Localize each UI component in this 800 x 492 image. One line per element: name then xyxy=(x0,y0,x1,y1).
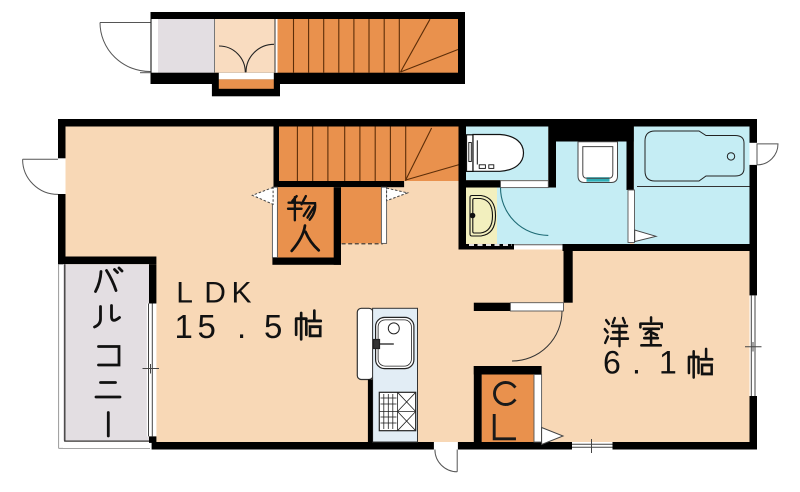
svg-text:5: 5 xyxy=(264,308,282,345)
svg-text:5: 5 xyxy=(198,308,216,345)
svg-text:D: D xyxy=(204,277,226,310)
svg-text:1: 1 xyxy=(175,308,193,345)
svg-text:K: K xyxy=(232,277,252,310)
svg-text:.: . xyxy=(237,308,246,345)
svg-text:L: L xyxy=(176,277,193,310)
svg-text:6: 6 xyxy=(603,345,621,381)
svg-text:1: 1 xyxy=(659,345,677,381)
svg-text:.: . xyxy=(632,345,641,381)
